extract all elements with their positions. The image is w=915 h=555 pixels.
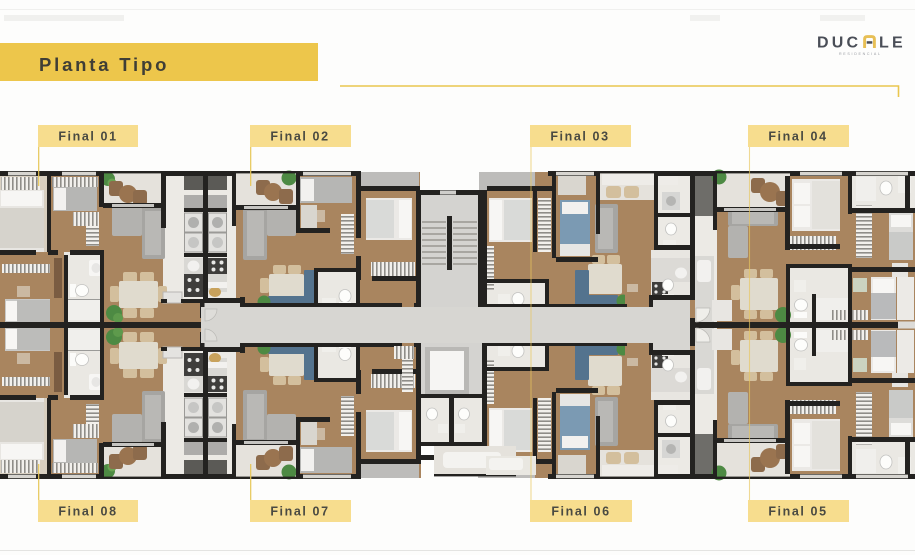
svg-text:Planta Tipo: Planta Tipo [39,54,169,75]
svg-text:Final 08: Final 08 [58,505,117,519]
svg-text:Final 02: Final 02 [270,130,329,144]
svg-text:Final 05: Final 05 [768,505,827,519]
svg-text:RESIDENCIAL: RESIDENCIAL [839,52,882,56]
svg-text:Final 01: Final 01 [58,130,117,144]
svg-text:DUC: DUC [817,35,861,52]
svg-text:Final 07: Final 07 [270,505,329,519]
svg-text:Final 04: Final 04 [768,130,827,144]
svg-text:Final 03: Final 03 [550,130,609,144]
svg-text:Final 06: Final 06 [551,505,610,519]
svg-text:LE: LE [879,35,906,52]
